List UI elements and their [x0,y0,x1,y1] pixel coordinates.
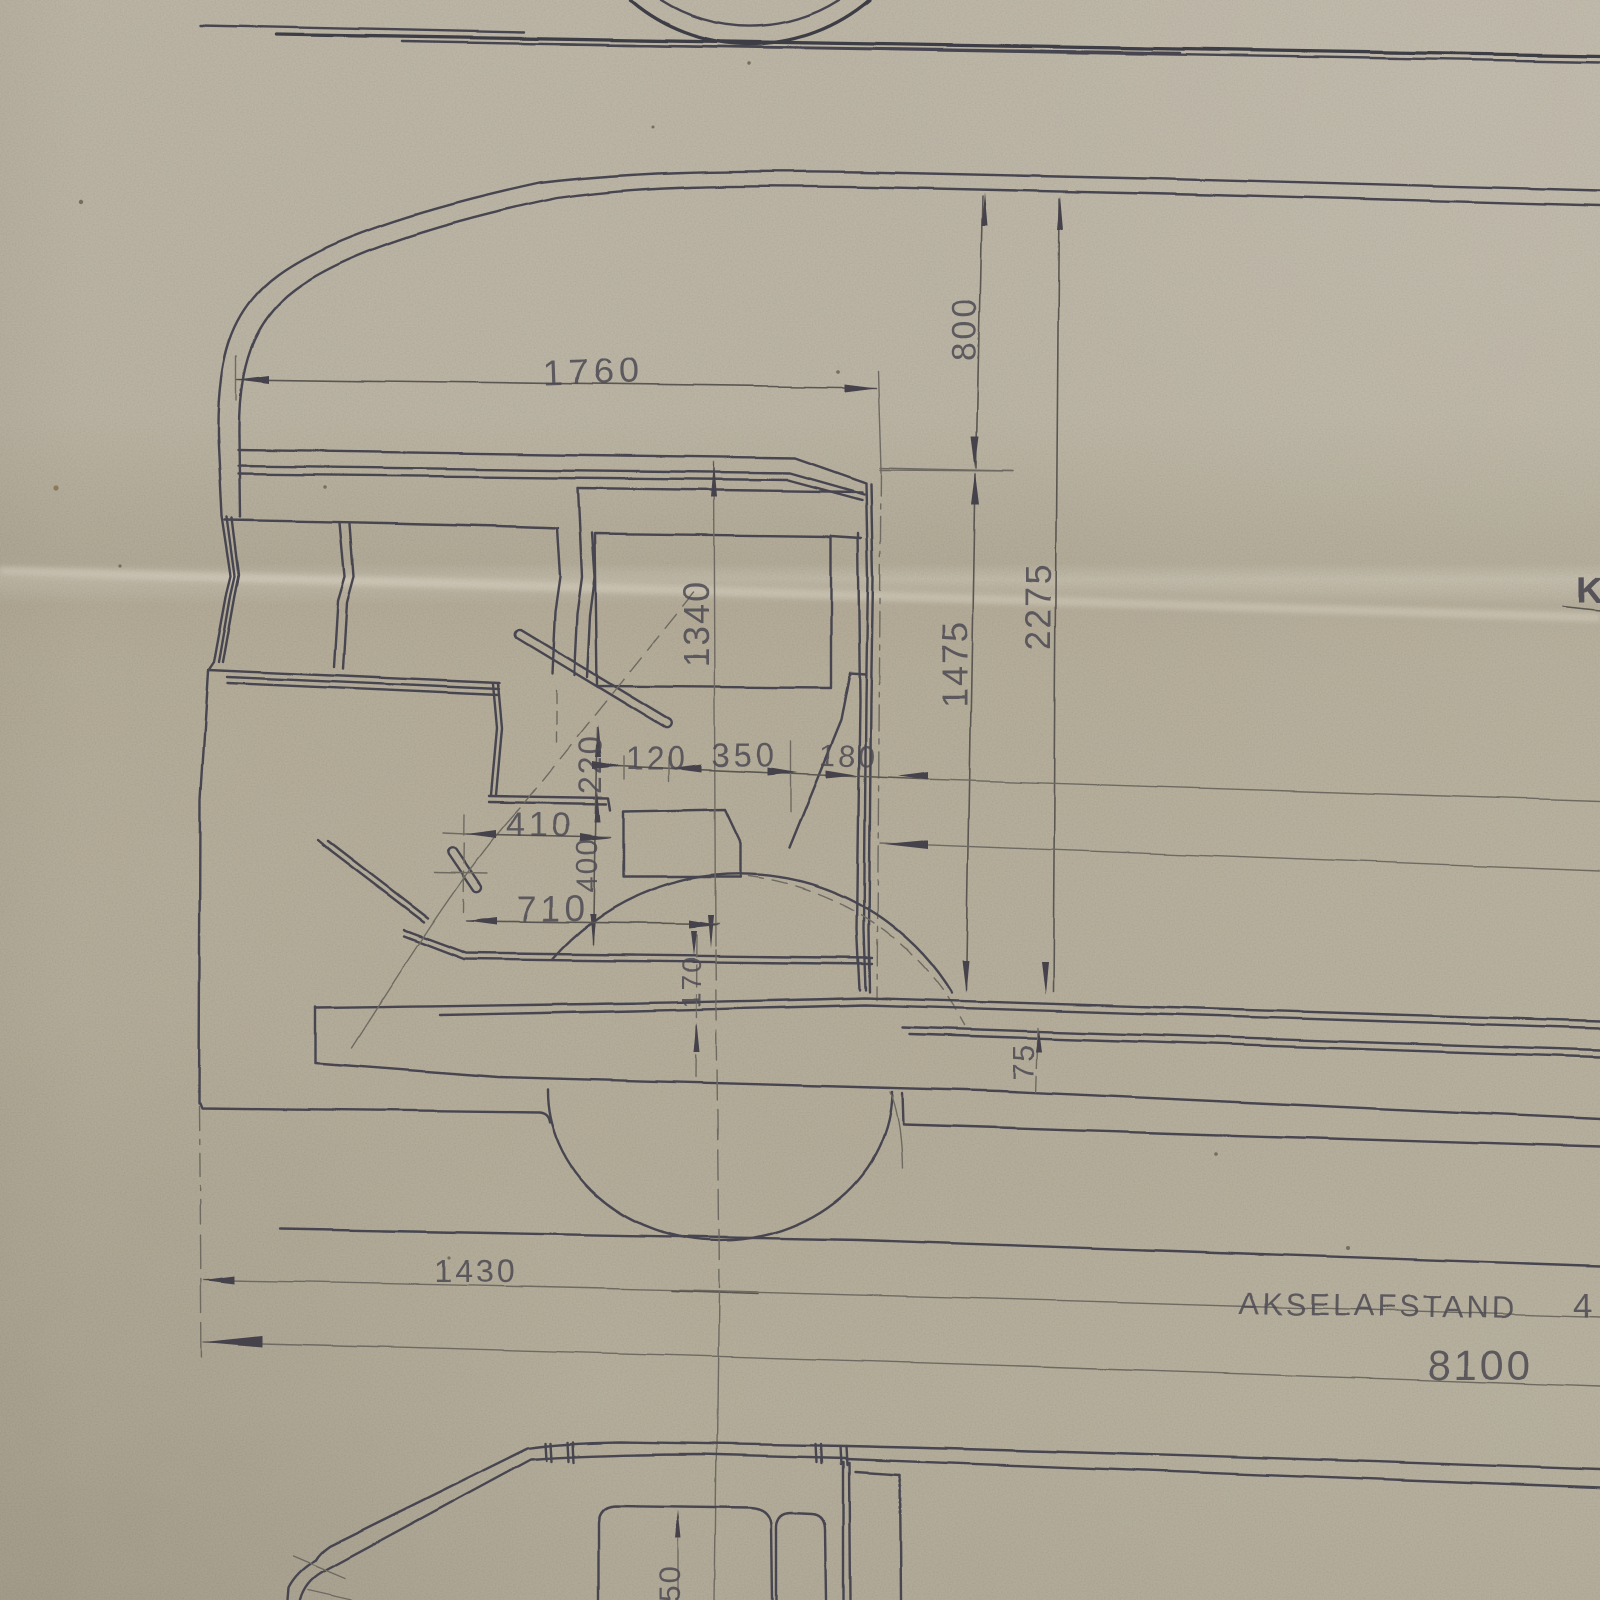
svg-text:350: 350 [712,737,777,773]
svg-text:1760: 1760 [542,349,643,393]
svg-text:1430: 1430 [434,1253,517,1289]
svg-text:K: K [1576,570,1600,611]
svg-text:120: 120 [626,740,688,776]
svg-text:75: 75 [1008,1043,1041,1080]
svg-text:400: 400 [571,837,604,893]
svg-text:4: 4 [1573,1287,1592,1325]
svg-text:1475: 1475 [934,620,975,708]
svg-text:AKSELAFSTAND: AKSELAFSTAND [1239,1286,1518,1326]
svg-text:410: 410 [506,806,575,844]
svg-text:800: 800 [946,295,984,361]
svg-text:710: 710 [517,888,589,929]
svg-text:50: 50 [654,1565,687,1600]
svg-text:2275: 2275 [1018,562,1059,650]
svg-text:170: 170 [676,955,707,1008]
svg-text:180: 180 [818,739,878,774]
svg-text:8100: 8100 [1428,1341,1533,1388]
svg-text:1340: 1340 [676,580,717,668]
